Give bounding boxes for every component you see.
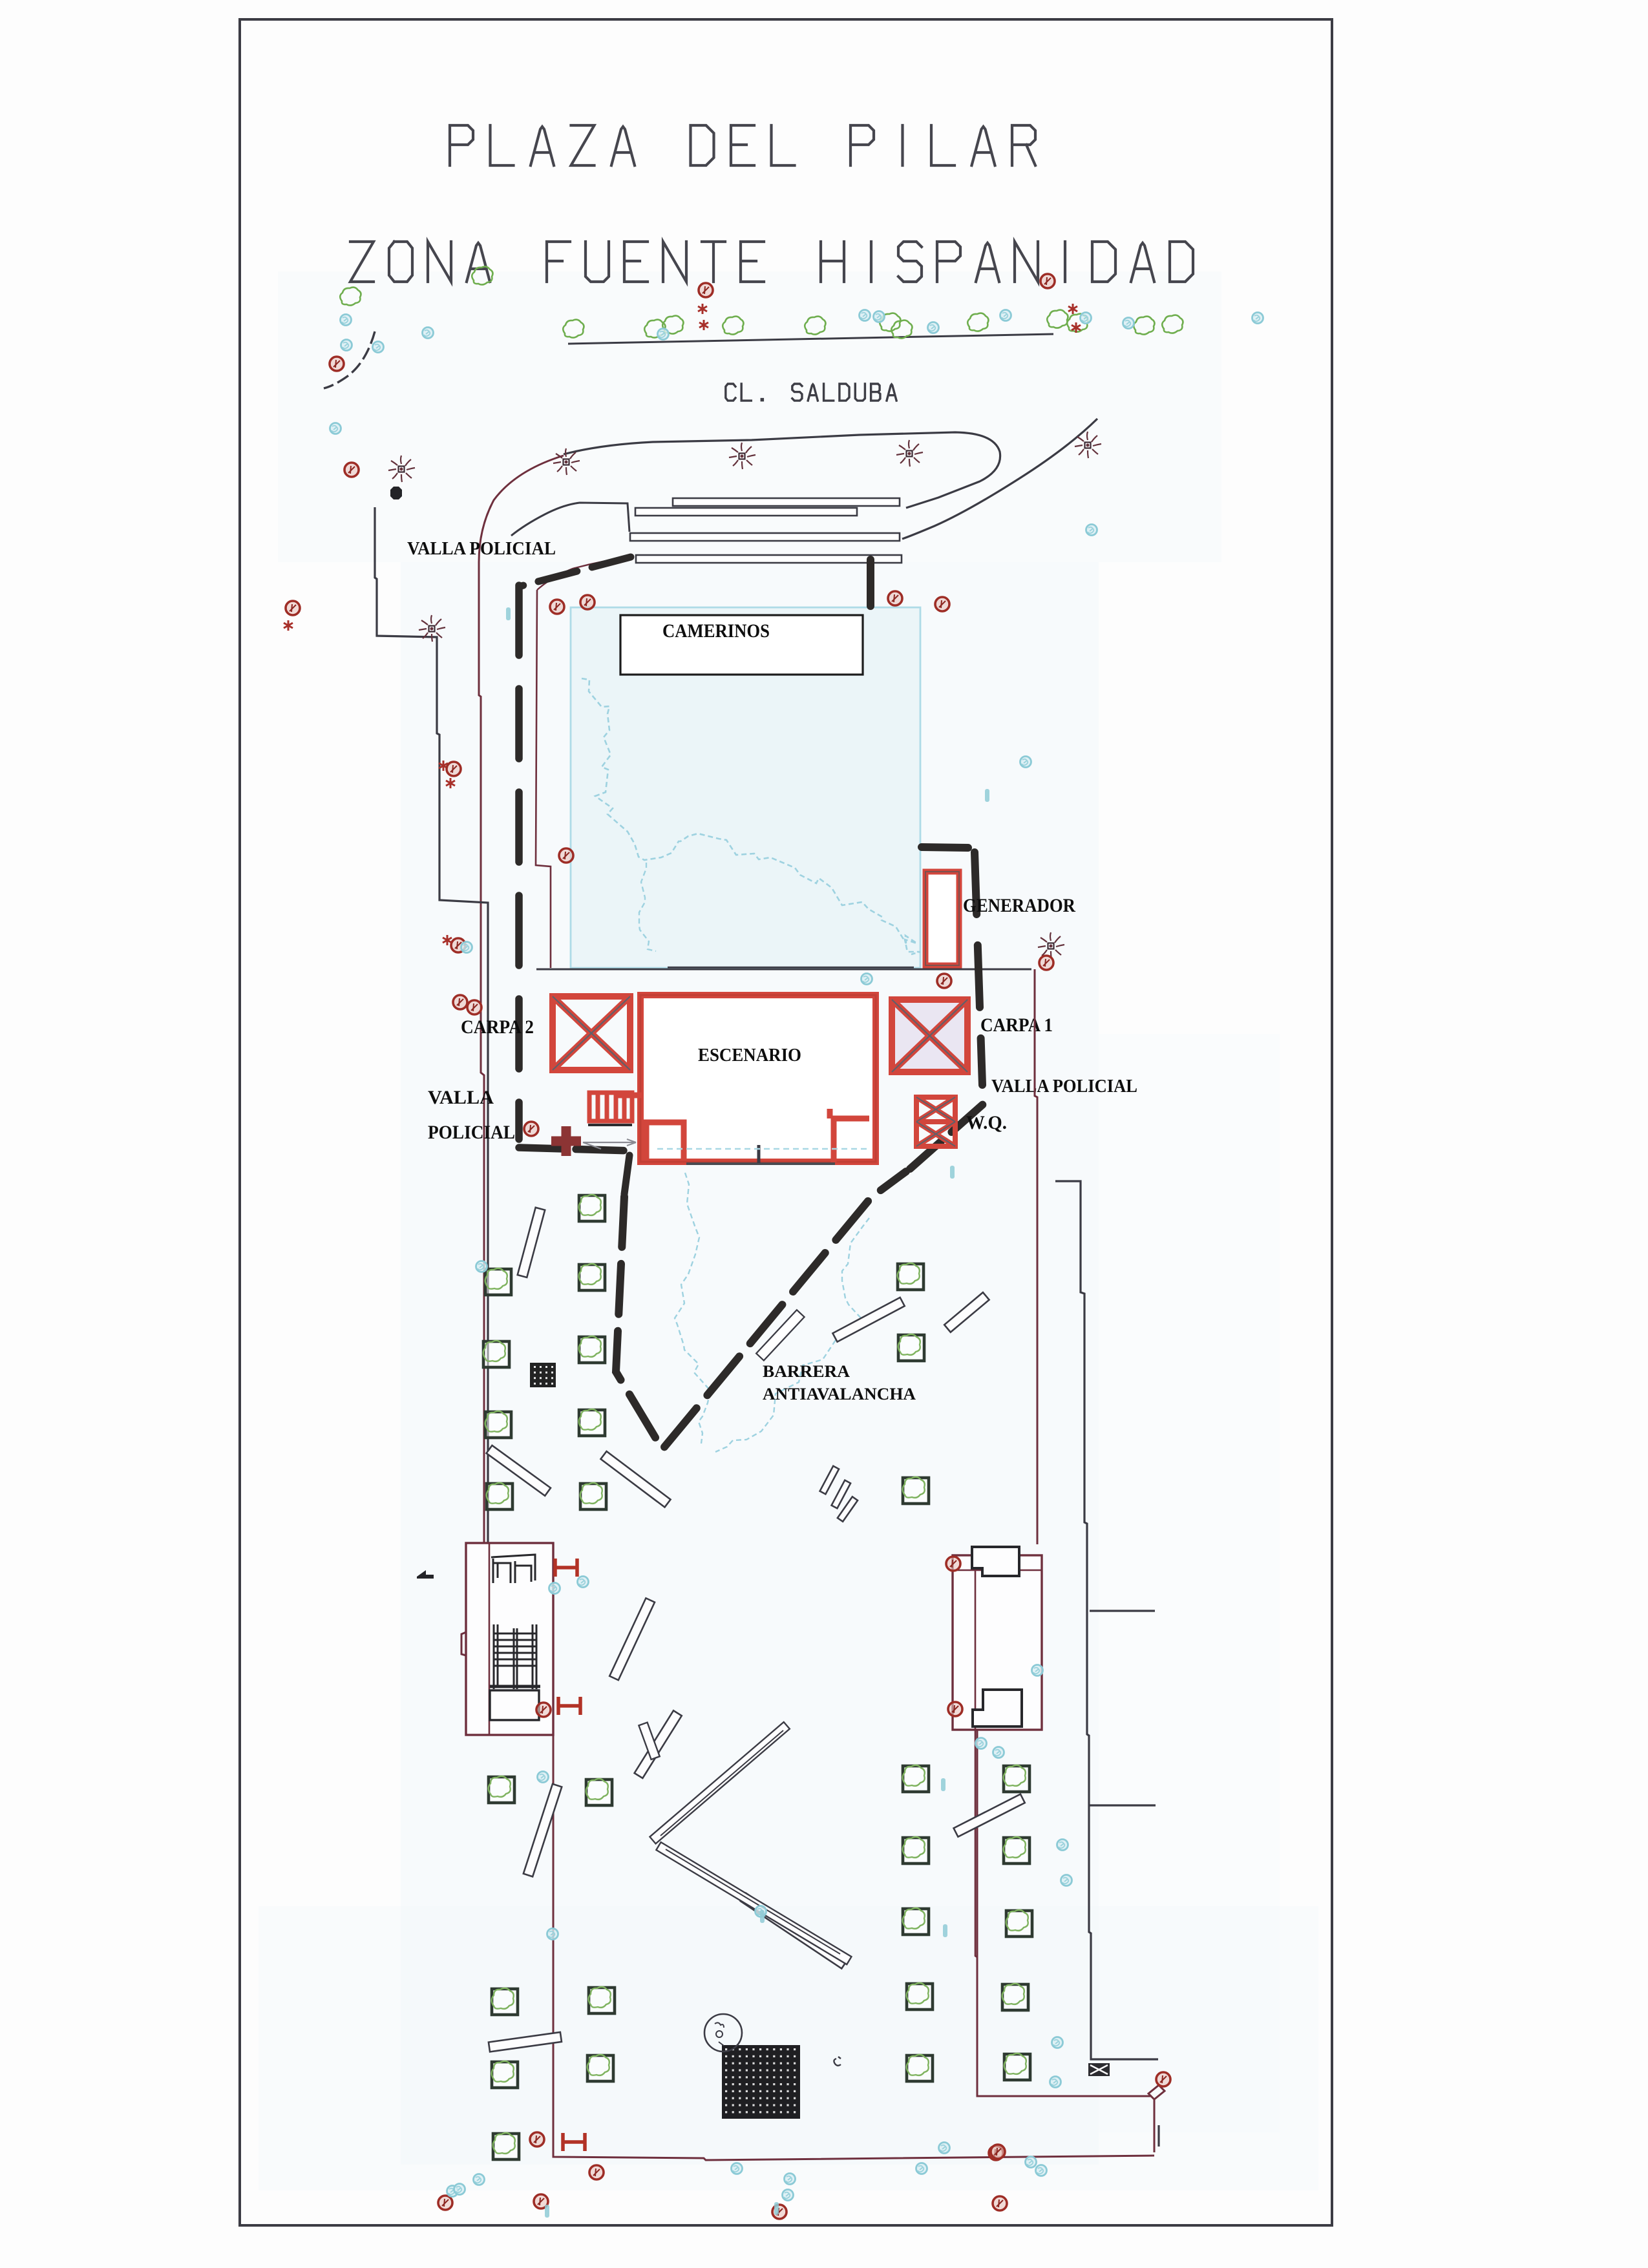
svg-text:VALLA POLICIAL: VALLA POLICIAL [991,1076,1137,1097]
svg-text:ANTIAVALANCHA: ANTIAVALANCHA [763,1385,916,1403]
svg-text:CARPA 2: CARPA 2 [461,1016,534,1038]
svg-text:CAMERINOS: CAMERINOS [662,620,770,642]
svg-text:VALLA: VALLA [428,1087,494,1108]
svg-text:ESCENARIO: ESCENARIO [698,1045,801,1066]
svg-text:GENERADOR: GENERADOR [963,895,1075,916]
svg-text:VALLA POLICIAL: VALLA POLICIAL [407,539,556,559]
svg-text:CARPA 1: CARPA 1 [980,1014,1053,1036]
svg-text:POLICIAL: POLICIAL [428,1122,515,1143]
svg-text:BARRERA: BARRERA [763,1362,850,1381]
svg-text:W.Q.: W.Q. [966,1112,1007,1133]
